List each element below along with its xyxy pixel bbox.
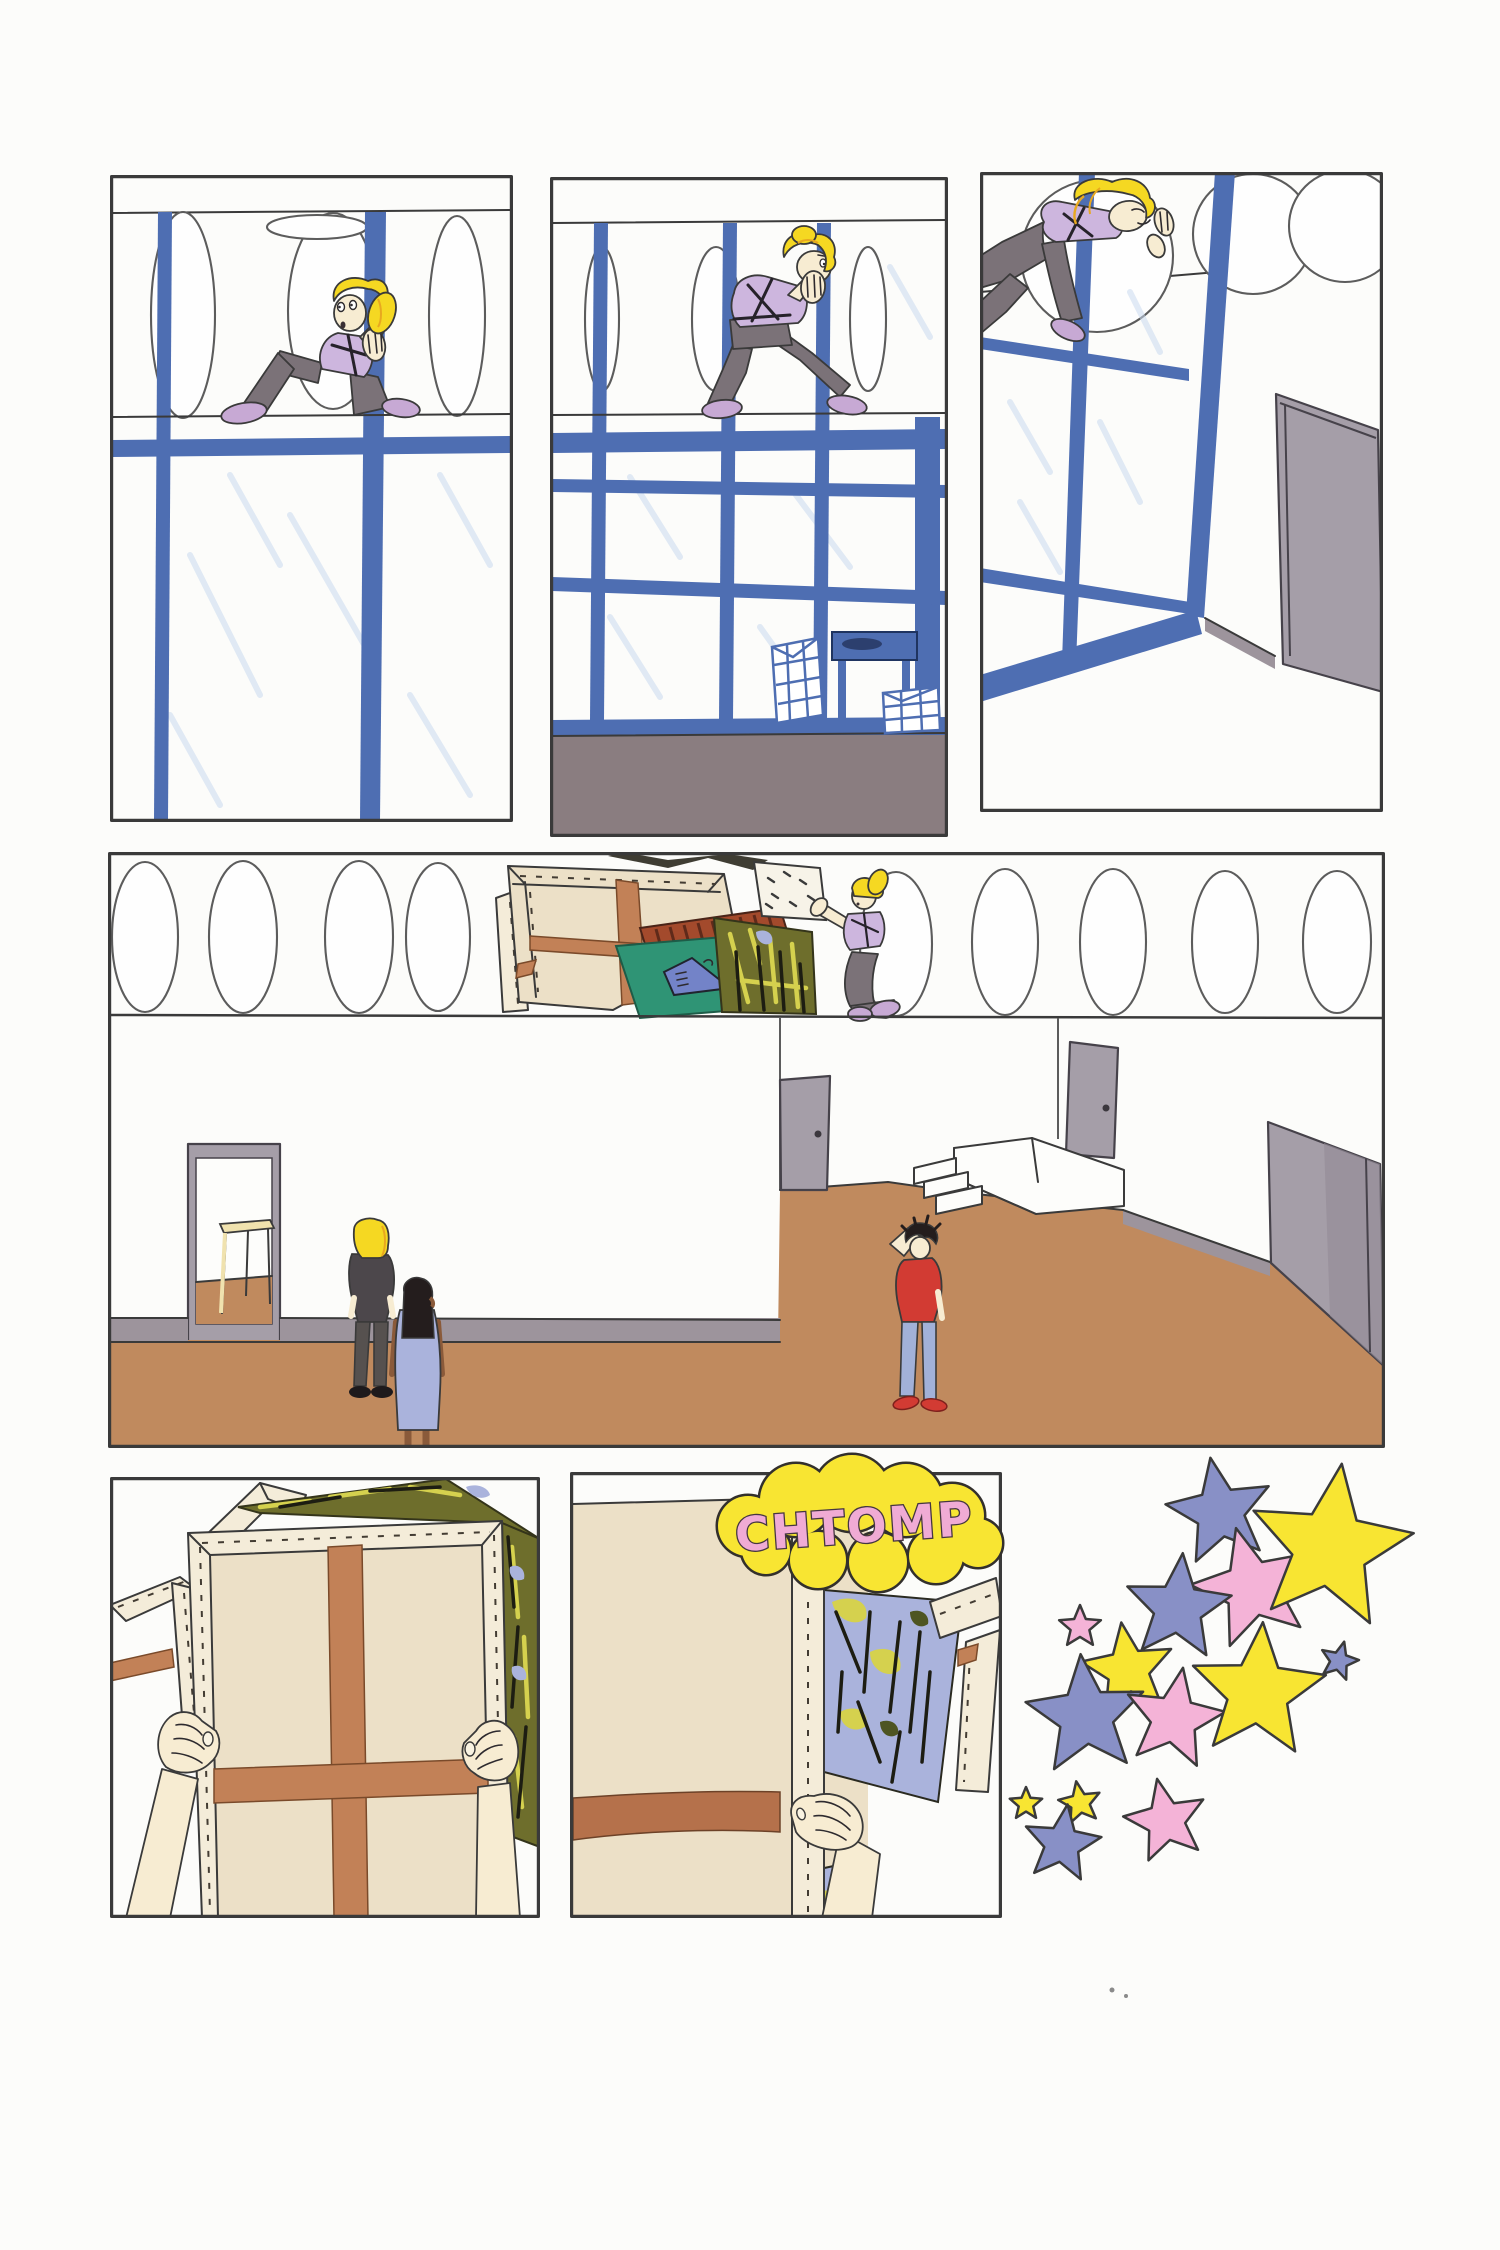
panel-5-hands-holding-canvas	[110, 1477, 540, 1918]
wire-crate-right	[883, 687, 940, 733]
column-ovals	[151, 212, 485, 418]
gray-door	[1276, 394, 1383, 692]
ceiling-line	[552, 220, 946, 223]
shoe	[701, 398, 743, 420]
star-yellow	[1254, 1464, 1414, 1623]
comic-page: CHTOMP	[0, 0, 1500, 2250]
shoe	[381, 396, 421, 419]
ledge-bottom-line	[108, 1015, 1385, 1018]
panel-2-girl-walking-ledge	[550, 177, 948, 837]
brace-vertical	[328, 1545, 368, 1918]
door-a	[780, 1076, 830, 1190]
star-blue	[1322, 1642, 1359, 1680]
panel-3-girl-peering-corner	[980, 172, 1383, 812]
star-yellow	[1193, 1622, 1326, 1751]
star-pink	[1059, 1605, 1101, 1645]
door-b	[1066, 1042, 1118, 1158]
star-blue	[1127, 1553, 1231, 1655]
panel-1-girl-kneeling-on-ledge	[110, 175, 513, 822]
ink-speckle	[1124, 1994, 1128, 1998]
ink-speckle	[1110, 1988, 1115, 1993]
sfx-bubble: CHTOMP	[700, 1448, 1010, 1598]
wire-crate-left	[772, 638, 823, 723]
ledge-line	[112, 414, 511, 417]
right-wall	[1205, 394, 1383, 692]
star-pink	[1123, 1779, 1203, 1860]
stars-cascade	[980, 1430, 1460, 2020]
panel-4-loft-room	[108, 852, 1385, 1448]
star-yellow	[1010, 1787, 1042, 1818]
gray-floor	[552, 735, 946, 835]
left-doorway	[188, 1144, 280, 1342]
glass-streaks	[170, 475, 490, 805]
main-canvas-back	[188, 1521, 510, 1918]
red-shirt	[896, 1258, 942, 1322]
head	[334, 295, 366, 331]
floor-and-furniture	[552, 632, 946, 835]
head	[910, 1237, 930, 1259]
baseboard-and-floor	[108, 1182, 1385, 1446]
shoe	[220, 399, 269, 427]
olive-abstract-painting	[714, 918, 816, 1014]
canvas-stack	[496, 852, 826, 1018]
long-black-hair	[402, 1278, 434, 1338]
onlooker-dark-hair-dress	[392, 1278, 442, 1445]
ledge-line	[552, 413, 946, 415]
ledge-strip	[108, 852, 1385, 1021]
